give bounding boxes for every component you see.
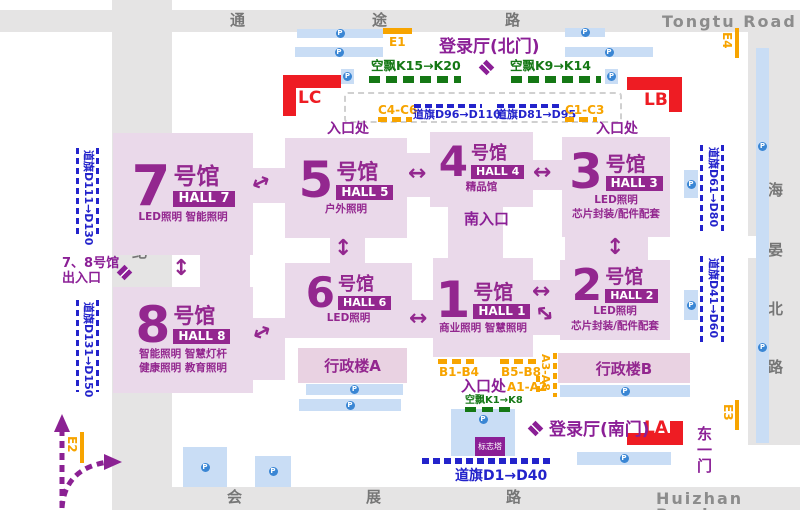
parking-icon: P xyxy=(621,387,630,396)
parking-icon: P xyxy=(343,72,352,81)
hall-7: 7 号馆 HALL 7 LED照明 智能照明 xyxy=(113,133,253,255)
flag-d131-line xyxy=(96,300,99,392)
road-bottom-char: 会 xyxy=(227,490,242,505)
hall-4: 4 号馆 HALL 4 精品馆 xyxy=(430,132,533,207)
parking-bar: P xyxy=(297,29,383,38)
parking-lot: P xyxy=(255,456,291,487)
parking-spot: P xyxy=(684,290,698,320)
hall-number: 1 xyxy=(436,279,471,322)
halls78-entrance-label: 7、8号馆出入口 xyxy=(62,257,119,287)
road-right-char: 北 xyxy=(768,302,783,317)
parking-icon: P xyxy=(620,454,629,463)
hall-number: 2 xyxy=(572,267,603,304)
hall-suffix: 号馆 xyxy=(473,282,513,302)
parking-bar: P xyxy=(565,47,653,57)
e4-gate-bar xyxy=(735,28,739,58)
hall-industries: 智能照明 智慧灯杆 xyxy=(139,347,227,362)
balloon-k1-label: 空飘K1→K8 xyxy=(465,396,523,406)
hall-badge: HALL 3 xyxy=(606,176,663,191)
e2-gate-label: E2 xyxy=(66,436,78,453)
hall-industries: LED照明 智能照明 xyxy=(138,210,227,225)
balloon-k15-label: 空飘K15→K20 xyxy=(371,60,461,73)
gate-lc-label: LC xyxy=(298,90,321,107)
hall-suffix: 号馆 xyxy=(173,166,219,189)
arrow-h3-h2: ↕ xyxy=(606,237,624,259)
hall-number: 8 xyxy=(136,304,171,347)
road-top-name-en: Tongtu Road xyxy=(662,14,797,30)
flag-d41-label: 道旗D41→D60 xyxy=(708,258,719,338)
gate-lc-bar xyxy=(283,75,296,116)
e3-gate-label: E3 xyxy=(722,404,734,421)
road-top-char: 路 xyxy=(505,13,520,28)
flag-d131-label: 道旗D131→D150 xyxy=(83,302,94,397)
parking-bar: P xyxy=(577,452,671,465)
hall-badge: HALL 5 xyxy=(336,185,393,200)
hall-industries: LED照明 xyxy=(594,193,638,208)
balloon-k1-line xyxy=(465,407,513,412)
hall-3: 3 号馆 HALL 3 LED照明 芯片封装/配件配套 xyxy=(562,137,670,237)
gate-lb-label: LB xyxy=(644,92,668,109)
admin-b-label: 行政楼B xyxy=(596,358,652,379)
parking-icon: P xyxy=(607,72,616,81)
hall-number: 5 xyxy=(299,159,334,202)
east-gate-char: 门 xyxy=(697,459,712,474)
hall-suffix: 号馆 xyxy=(173,306,215,327)
arrow-h5-h6: ↕ xyxy=(334,238,352,260)
hall-number: 4 xyxy=(439,144,468,180)
parking-spot: P xyxy=(341,69,354,84)
landmark-tower: 标志塔 xyxy=(475,437,505,456)
hall-6: 6 号馆 HALL 6 LED照明 xyxy=(285,263,412,338)
flag-d111-label: 道旗D111→D130 xyxy=(83,150,94,245)
parking-bar: P xyxy=(560,385,690,397)
exhibition-map: 通 途 路 Tongtu Road 世 纪 大 道 海 晏 北 路 会 展 路 … xyxy=(0,0,800,510)
zone-a38-label: A3-A8 xyxy=(540,354,551,391)
hall-industries: 芯片封装/配件配套 xyxy=(572,207,660,222)
entrance-label-north-west: 入口处 xyxy=(327,121,369,137)
road-bottom-char: 路 xyxy=(506,490,521,505)
hall-number: 6 xyxy=(306,275,335,311)
zone-b58-line xyxy=(500,359,536,364)
hall-suffix: 号馆 xyxy=(606,154,646,174)
hall-badge: HALL 6 xyxy=(338,296,391,310)
parking-icon: P xyxy=(479,415,488,424)
admin-building-b: 行政楼B xyxy=(558,353,690,383)
parking-icon: P xyxy=(269,467,278,476)
arrow-h5-h4: ↔ xyxy=(408,163,426,185)
hall-industries: 商业照明 智慧照明 xyxy=(439,321,527,336)
parking-icon: P xyxy=(335,48,344,57)
parking-icon: P xyxy=(336,29,345,38)
hall-8: 8 号馆 HALL 8 智能照明 智慧灯杆 健康照明 教育照明 xyxy=(113,287,253,393)
parking-spot: P xyxy=(605,69,618,84)
flag-d61-line xyxy=(700,145,703,231)
flag-d1-line xyxy=(422,458,553,464)
hall-industries: 健康照明 教育照明 xyxy=(139,361,227,376)
road-right-char: 海 xyxy=(768,183,783,198)
flag-d41-line xyxy=(700,256,703,346)
hall-industries: LED照明 xyxy=(327,311,371,326)
parking-bar: P xyxy=(565,28,605,37)
parking-icon: P xyxy=(687,180,696,189)
south-lobby-label: 登录厅(南门) xyxy=(549,421,650,441)
parking-icon: P xyxy=(687,301,696,310)
parking-bar: P xyxy=(299,399,401,411)
south-entrance-label: 南入口 xyxy=(464,211,509,228)
hall-5: 5 号馆 HALL 5 户外照明 xyxy=(285,138,407,238)
flag-d111-line xyxy=(76,148,79,238)
zone-b58-label: B5-B8 xyxy=(501,366,541,378)
hall-badge: HALL 1 xyxy=(473,304,530,319)
balloon-k15-line xyxy=(369,76,461,83)
hall-industries: 精品馆 xyxy=(466,180,498,195)
route-arrows xyxy=(40,410,135,510)
hall-suffix: 号馆 xyxy=(336,162,378,183)
parking-bar: P xyxy=(306,384,403,395)
admin-building-a: 行政楼A xyxy=(298,348,407,383)
hall-2: 2 号馆 HALL 2 LED照明 芯片封装/配件配套 xyxy=(560,260,670,340)
hall-badge: HALL 2 xyxy=(605,289,658,303)
hall-badge: HALL 8 xyxy=(173,329,230,344)
halls78-line1: 7、8号馆 xyxy=(62,256,119,271)
hall-industries: LED照明 xyxy=(593,304,637,319)
zone-b14-line xyxy=(438,359,474,364)
e3-gate-bar xyxy=(735,400,739,430)
flag-d61-line xyxy=(721,145,724,231)
zone-c46-label: C4-C6 xyxy=(378,104,417,116)
flag-d96-label: 道旗D96→D110 xyxy=(413,109,501,120)
parking-strip-east xyxy=(756,48,769,443)
hall-suffix: 号馆 xyxy=(338,276,374,294)
road-top-char: 途 xyxy=(372,13,387,28)
flag-d41-line xyxy=(721,256,724,346)
north-lobby-label: 登录厅(北门) xyxy=(439,38,540,58)
parking-icon: P xyxy=(758,343,767,352)
e2-gate-bar xyxy=(80,432,84,463)
east-gate-label: 东 一 门 xyxy=(697,427,712,474)
hall-industries: 户外照明 xyxy=(325,202,367,217)
parking-icon: P xyxy=(201,463,210,472)
zone-a38-line xyxy=(553,353,557,397)
hall-badge: HALL 7 xyxy=(173,191,234,207)
south-lobby-diamond-icon xyxy=(528,421,544,437)
arrow-h4-h3: ↔ xyxy=(533,162,551,184)
road-bottom-char: 展 xyxy=(366,490,381,505)
road-right-char: 路 xyxy=(768,360,783,375)
hall-badge: HALL 4 xyxy=(471,165,524,179)
e1-gate-label: E1 xyxy=(389,36,406,48)
flag-d1-label: 道旗D1→D40 xyxy=(455,469,547,483)
hall-number: 3 xyxy=(569,152,602,193)
entrance-label-north-east: 入口处 xyxy=(596,121,638,137)
parking-icon: P xyxy=(346,401,355,410)
arrow-h6-h1: ↔ xyxy=(409,308,427,330)
road-bottom-name-en: Huizhan Road xyxy=(656,491,800,510)
tower-label: 标志塔 xyxy=(478,441,502,452)
hall-suffix: 号馆 xyxy=(471,145,507,163)
parking-icon: P xyxy=(581,28,590,37)
hall-industries: 芯片封装/配件配套 xyxy=(571,319,659,334)
hall-1: 1 号馆 HALL 1 商业照明 智慧照明 xyxy=(433,258,533,357)
road-top-char: 通 xyxy=(230,13,245,28)
gate-lb-bar xyxy=(669,77,682,112)
parking-icon: P xyxy=(605,48,614,57)
parking-bar: P xyxy=(295,47,383,57)
parking-icon: P xyxy=(350,385,359,394)
flag-d111-line xyxy=(96,148,99,238)
hall-number: 7 xyxy=(131,163,170,211)
east-gate-char: 一 xyxy=(697,443,712,458)
parking-icon: P xyxy=(758,142,767,151)
zone-c46-line xyxy=(378,117,412,122)
balloon-k9-label: 空飘K9→K14 xyxy=(510,60,591,73)
connector-h7-h8 xyxy=(200,255,250,287)
admin-a-label: 行政楼A xyxy=(324,355,381,376)
zone-c13-label: C1-C3 xyxy=(565,104,604,116)
balloon-k9-line xyxy=(511,76,601,83)
hall-suffix: 号馆 xyxy=(605,268,643,287)
halls78-line2: 出入口 xyxy=(62,271,101,286)
north-lobby-diamond-icon xyxy=(479,60,495,76)
entrance-label-south: 入口处 xyxy=(461,378,506,395)
e1-gate-bar xyxy=(383,28,412,34)
parking-lot: P xyxy=(183,447,227,487)
flag-d61-label: 道旗D61→D80 xyxy=(708,147,719,227)
east-gate-char: 东 xyxy=(697,427,712,442)
zone-c13-line xyxy=(565,117,597,122)
road-right-char: 晏 xyxy=(768,243,783,258)
arrow-h7-h8: ↕ xyxy=(172,258,190,280)
flag-d131-line xyxy=(76,300,79,392)
e4-gate-label: E4 xyxy=(721,32,733,49)
parking-spot: P xyxy=(684,170,698,198)
